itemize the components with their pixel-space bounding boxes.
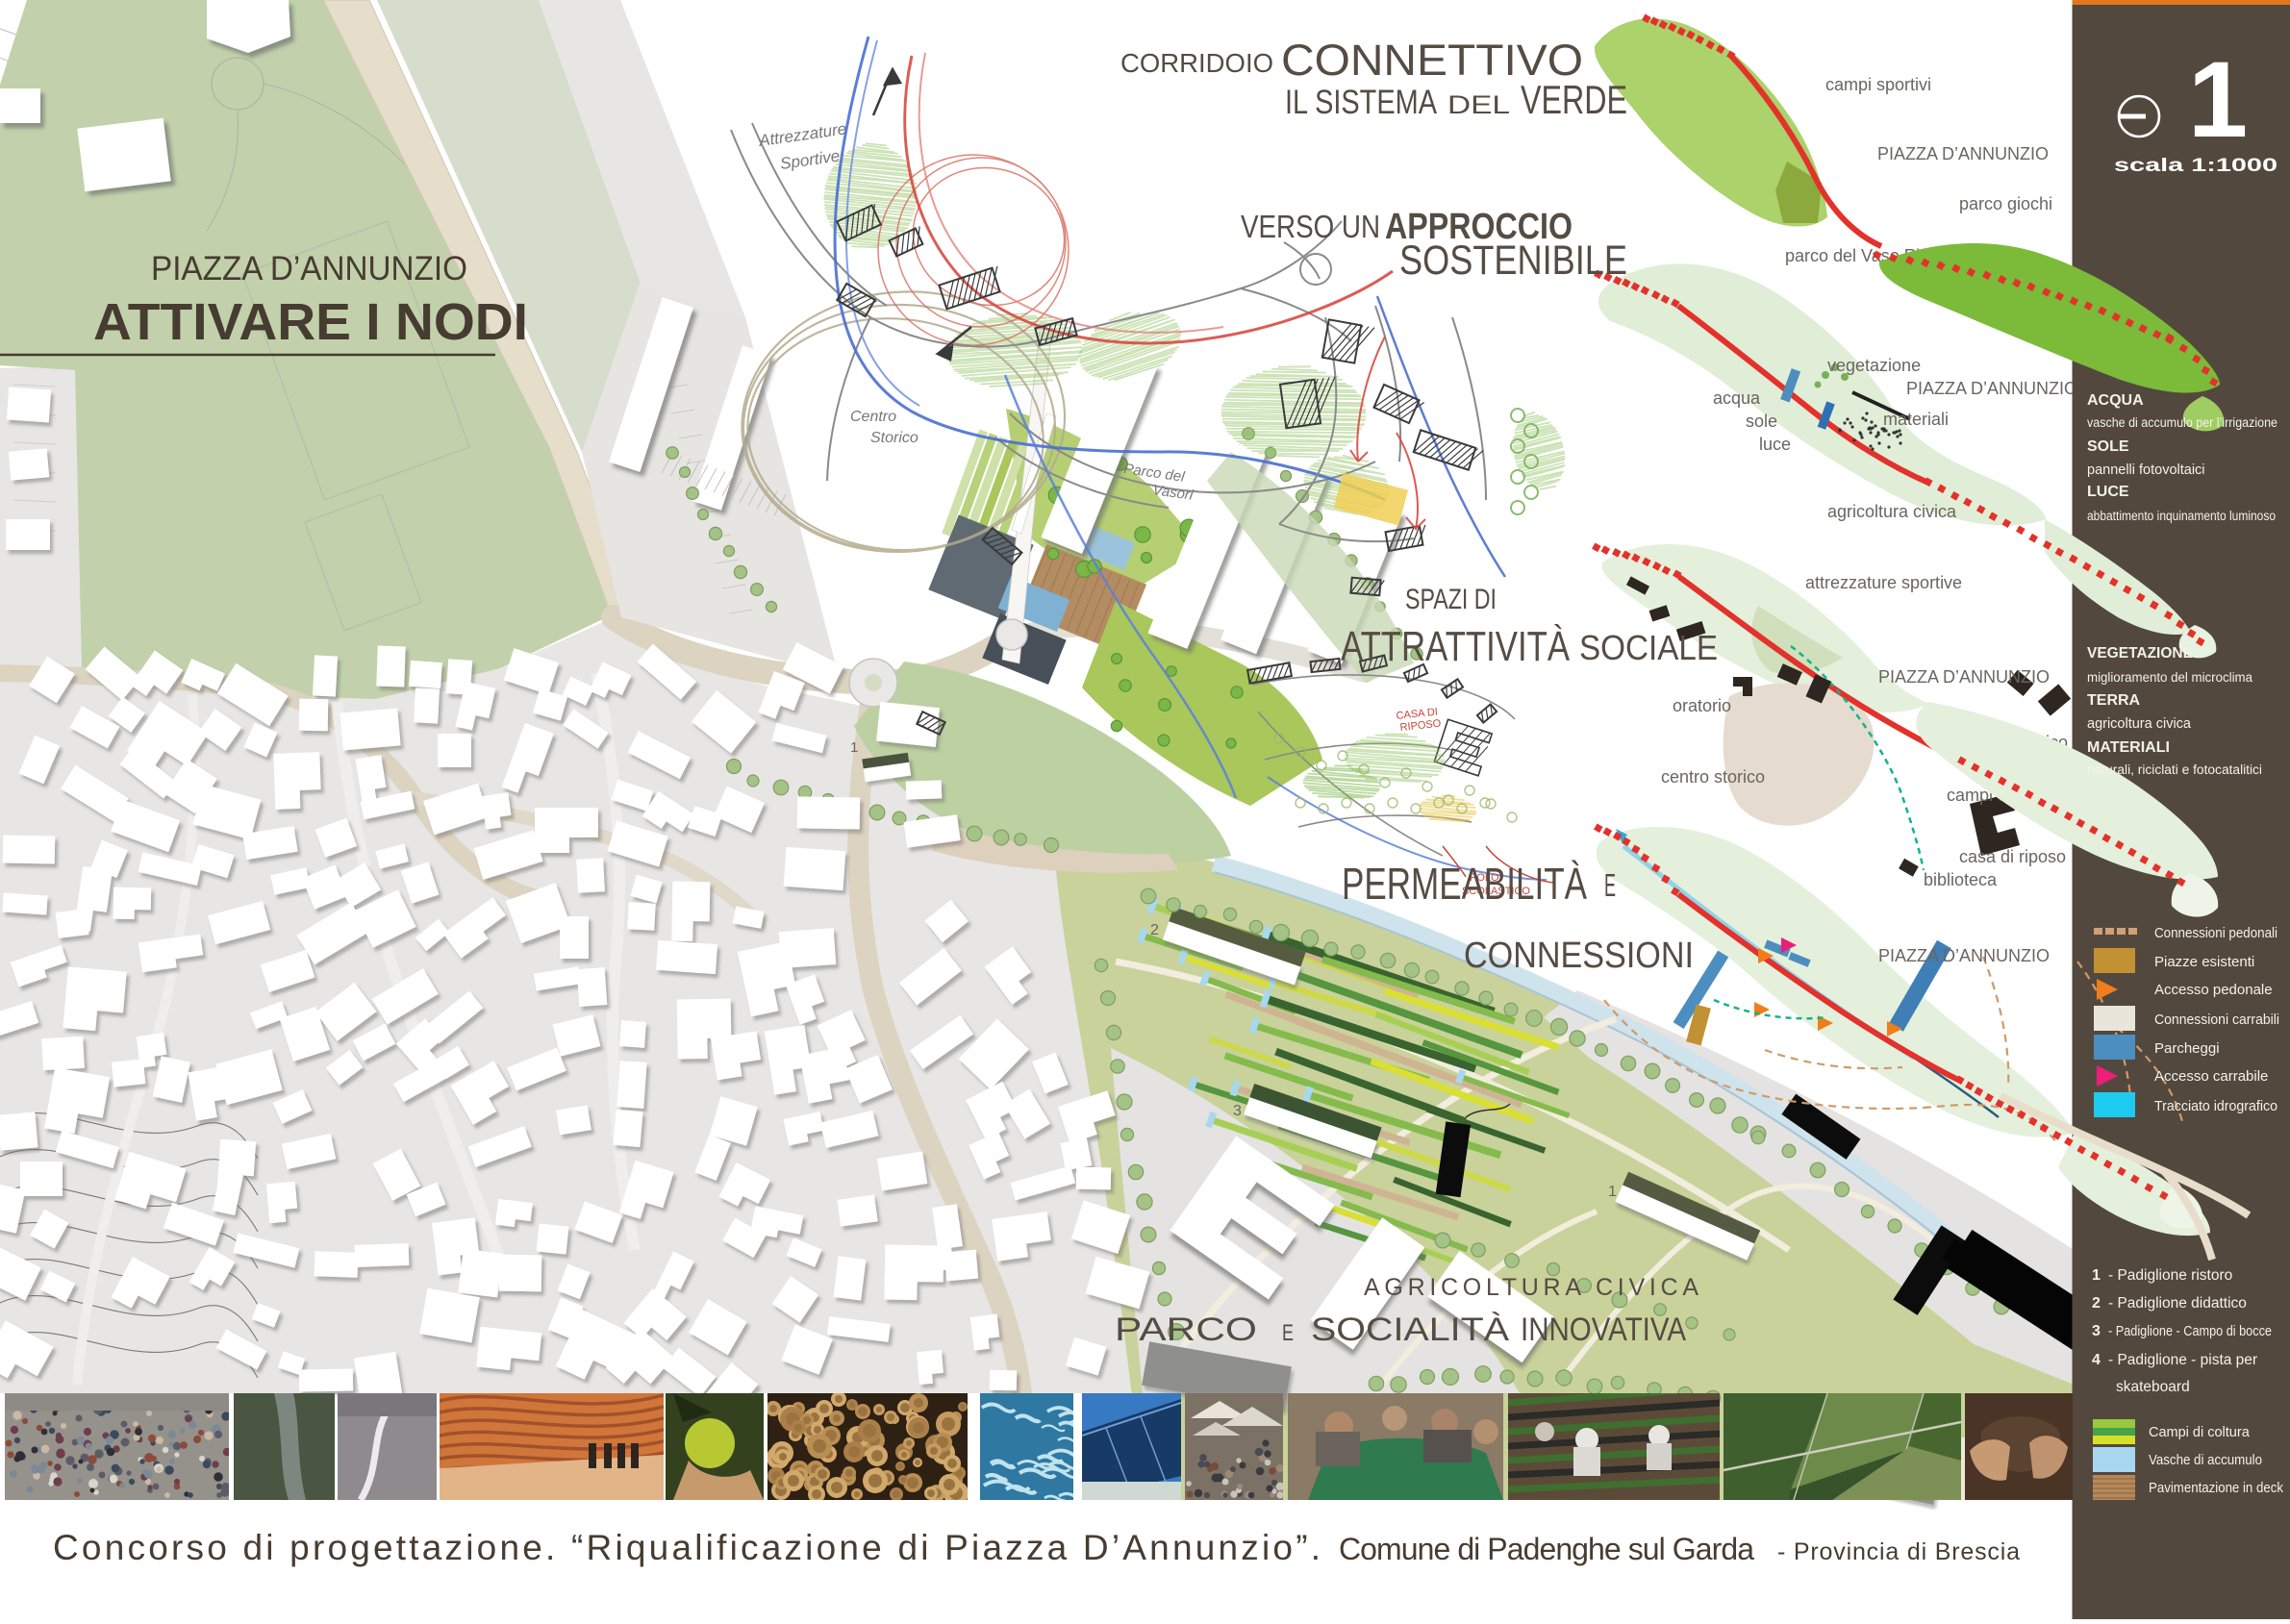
svg-text:INNOVATIVA: INNOVATIVA	[1521, 1312, 1686, 1348]
svg-text:SOSTENIBILE: SOSTENIBILE	[1399, 237, 1627, 284]
svg-text:E: E	[1282, 1320, 1294, 1346]
svg-text:E: E	[1604, 867, 1616, 903]
svg-text:Campi di coltura: Campi di coltura	[2149, 1425, 2251, 1440]
svg-text:Comune di Padenghe sul Garda: Comune di Padenghe sul Garda	[1339, 1532, 1754, 1566]
svg-text:IL SISTEMA: IL SISTEMA	[1285, 84, 1438, 121]
svg-text:Pavimentazione in deck: Pavimentazione in deck	[2149, 1481, 2284, 1496]
svg-text:PARCO: PARCO	[1115, 1312, 1257, 1348]
svg-text:Concorso di progettazione. “Ri: Concorso di progettazione. “Riqualificaz…	[53, 1528, 1321, 1567]
svg-text:SOCIALITÀ: SOCIALITÀ	[1311, 1312, 1509, 1348]
svg-text:acqua: acqua	[1713, 388, 1761, 408]
svg-text:vegetazione: vegetazione	[1827, 356, 1921, 375]
svg-text:Vasche di accumulo: Vasche di accumulo	[2149, 1453, 2262, 1468]
svg-text:miglioramento del microclima: miglioramento del microclima	[2087, 670, 2252, 686]
svg-text:luce: luce	[1759, 435, 1791, 454]
svg-text:PIAZZA D’ANNUNZIO: PIAZZA D’ANNUNZIO	[1878, 667, 2050, 687]
svg-text:ATTRATTIVITÀ: ATTRATTIVITÀ	[1341, 623, 1571, 670]
svg-text:Accesso carrabile: Accesso carrabile	[2154, 1068, 2268, 1085]
svg-text:pannelli fotovoltaici: pannelli fotovoltaici	[2087, 462, 2205, 478]
svg-text:MATERIALI: MATERIALI	[2087, 739, 2170, 756]
svg-text:parco giochi: parco giochi	[1959, 194, 2052, 213]
svg-text:DEL: DEL	[1447, 90, 1510, 119]
svg-text:1: 1	[2092, 1267, 2101, 1284]
svg-text:AGRICOLTURA CIVICA: AGRICOLTURA CIVICA	[1364, 1274, 1699, 1301]
svg-text:CORRIDOIO: CORRIDOIO	[1120, 48, 1273, 78]
svg-text:materiali: materiali	[1883, 410, 1949, 429]
svg-text:attrezzature sportive: attrezzature sportive	[1805, 573, 1962, 592]
svg-text:Accesso pedonale: Accesso pedonale	[2154, 982, 2273, 998]
svg-text:PIAZZA D’ANNUNZIO: PIAZZA D’ANNUNZIO	[151, 250, 467, 287]
svg-text:Centro: Centro	[850, 409, 896, 425]
svg-text:centro storico: centro storico	[1661, 767, 1765, 787]
svg-text:- Padiglione - Campo di bocce: - Padiglione - Campo di bocce	[2108, 1323, 2272, 1339]
svg-text:sole: sole	[1746, 412, 1777, 431]
svg-text:casa di riposo: casa di riposo	[1959, 847, 2066, 866]
svg-text:PIAZZA D’ANNUNZIO: PIAZZA D’ANNUNZIO	[1906, 379, 2077, 398]
svg-text:1: 1	[1608, 1184, 1617, 1200]
svg-text:vasche di accumulo per l’irrig: vasche di accumulo per l’irrigazione	[2087, 415, 2277, 431]
svg-text:oratorio: oratorio	[1673, 696, 1731, 715]
svg-text:PERMEABILITÀ: PERMEABILITÀ	[1342, 859, 1587, 909]
svg-text:ATTIVARE I NODI: ATTIVARE I NODI	[93, 293, 528, 351]
svg-text:Parcheggi: Parcheggi	[2154, 1040, 2220, 1057]
svg-text:agricoltura civica: agricoltura civica	[1827, 502, 1957, 521]
svg-text:1: 1	[2188, 39, 2248, 160]
svg-text:CONNESSIONI: CONNESSIONI	[1464, 936, 1694, 976]
svg-text:4: 4	[2092, 1352, 2101, 1368]
svg-text:Connessioni carrabili: Connessioni carrabili	[2154, 1012, 2279, 1028]
svg-text:abbattimento inquinamento lumi: abbattimento inquinamento luminoso	[2087, 509, 2276, 524]
svg-text:2: 2	[2092, 1295, 2101, 1312]
svg-text:scala 1:1000: scala 1:1000	[2114, 156, 2277, 176]
svg-text:Connessioni pedonali: Connessioni pedonali	[2154, 926, 2277, 941]
svg-text:PIAZZA D’ANNUNZIO: PIAZZA D’ANNUNZIO	[1877, 144, 2049, 163]
svg-text:Piazze esistenti: Piazze esistenti	[2154, 954, 2254, 970]
svg-text:SPAZI DI: SPAZI DI	[1405, 584, 1497, 615]
svg-text:PIAZZA D’ANNUNZIO: PIAZZA D’ANNUNZIO	[1878, 946, 2050, 965]
svg-text:- Provincia di Brescia: - Provincia di Brescia	[1777, 1538, 2020, 1565]
svg-text:SOLE: SOLE	[2087, 438, 2129, 455]
svg-text:biblioteca: biblioteca	[1924, 870, 1998, 889]
svg-text:- Padiglione ristoro: - Padiglione ristoro	[2108, 1267, 2232, 1284]
svg-text:- Padiglione didattico: - Padiglione didattico	[2108, 1295, 2247, 1312]
svg-text:ACQUA: ACQUA	[2087, 392, 2144, 409]
svg-text:skateboard: skateboard	[2116, 1379, 2190, 1395]
svg-text:campi sportivi: campi sportivi	[1825, 75, 1931, 94]
svg-text:TERRA: TERRA	[2087, 692, 2141, 709]
svg-text:VERDE: VERDE	[1521, 77, 1627, 122]
svg-text:- Padiglione - pista per: - Padiglione - pista per	[2108, 1352, 2257, 1368]
svg-text:3: 3	[2092, 1323, 2101, 1339]
svg-text:1: 1	[850, 739, 858, 756]
svg-text:3: 3	[1233, 1103, 1242, 1119]
svg-text:VERSO UN: VERSO UN	[1241, 209, 1380, 244]
svg-text:Storico: Storico	[870, 430, 919, 446]
svg-text:Tracciato idrografico: Tracciato idrografico	[2154, 1099, 2277, 1114]
svg-text:VEGETAZIONE: VEGETAZIONE	[2087, 645, 2193, 662]
svg-text:agricoltura civica: agricoltura civica	[2087, 716, 2192, 732]
svg-text:LUCE: LUCE	[2087, 484, 2129, 500]
svg-text:SOCIALE: SOCIALE	[1579, 628, 1718, 667]
svg-text:naturali, riciclati e fotocata: naturali, riciclati e fotocatalitici	[2087, 762, 2262, 778]
svg-text:2: 2	[1150, 922, 1159, 938]
